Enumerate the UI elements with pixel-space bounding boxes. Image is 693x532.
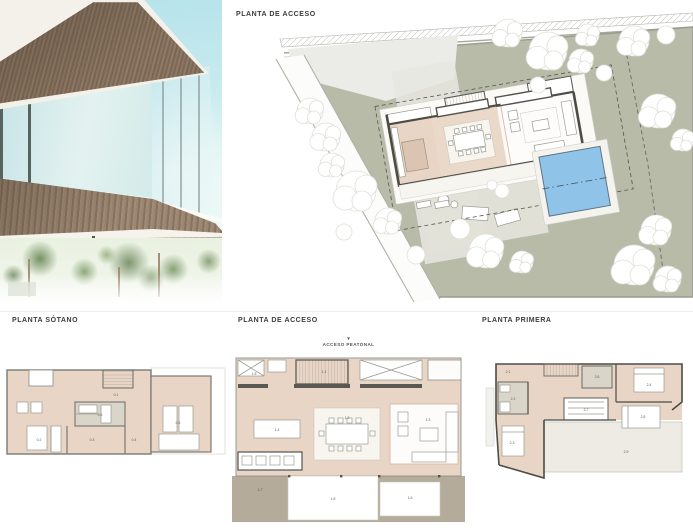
- svg-text:1.5: 1.5: [252, 372, 257, 376]
- svg-text:2.1: 2.1: [506, 370, 511, 374]
- house-render-photo: [0, 0, 222, 303]
- svg-text:1.2: 1.2: [345, 416, 350, 420]
- dining-table: [326, 424, 368, 444]
- svg-text:0.1: 0.1: [114, 393, 119, 397]
- svg-text:0.4: 0.4: [132, 438, 137, 442]
- access-plan-drawing: 1.11.51.41.21.31.71.81.6: [232, 336, 465, 526]
- svg-text:2.8: 2.8: [641, 415, 646, 419]
- garage-car: [402, 139, 429, 172]
- svg-text:0.6: 0.6: [98, 413, 103, 417]
- first-floor-plan-drawing: 2.12.62.42.22.72.82.32.9: [486, 358, 690, 480]
- neighbour-outline: [486, 388, 494, 446]
- bed: [634, 368, 664, 392]
- svg-text:2.3: 2.3: [510, 441, 515, 445]
- svg-text:1.8: 1.8: [331, 497, 336, 501]
- svg-text:2.6: 2.6: [595, 375, 600, 379]
- svg-text:2.4: 2.4: [647, 383, 652, 387]
- svg-text:0.2: 0.2: [37, 438, 42, 442]
- building-detail: [8, 282, 36, 296]
- svg-text:1.6: 1.6: [408, 496, 413, 500]
- svg-text:2.2: 2.2: [511, 397, 516, 401]
- stairs: [544, 364, 578, 376]
- light-well: [29, 370, 53, 386]
- access-plan-title: PLANTA DE ACCESO: [238, 317, 318, 324]
- svg-text:1.1: 1.1: [322, 370, 327, 374]
- dining-area: [444, 119, 496, 164]
- stairs: [103, 370, 133, 388]
- svg-text:2.7: 2.7: [584, 408, 589, 412]
- svg-text:0.3: 0.3: [90, 438, 95, 442]
- basement-plan-drawing: 0.10.60.20.30.40.5: [3, 362, 228, 462]
- site-plan-drawing: [236, 15, 693, 310]
- pool-water: [539, 146, 610, 216]
- living-area: [390, 404, 458, 464]
- roof-terrace: [544, 422, 682, 472]
- svg-text:0.5: 0.5: [176, 421, 181, 425]
- svg-text:1.4: 1.4: [275, 428, 280, 432]
- pool: [532, 139, 620, 225]
- svg-text:2.9: 2.9: [624, 450, 629, 454]
- svg-text:1.7: 1.7: [258, 488, 263, 492]
- first-floor-plan-title: PLANTA PRIMERA: [482, 317, 552, 324]
- svg-text:1.3: 1.3: [426, 418, 431, 422]
- basement-plan-title: PLANTA SÓTANO: [12, 317, 78, 324]
- section-divider: [0, 311, 693, 312]
